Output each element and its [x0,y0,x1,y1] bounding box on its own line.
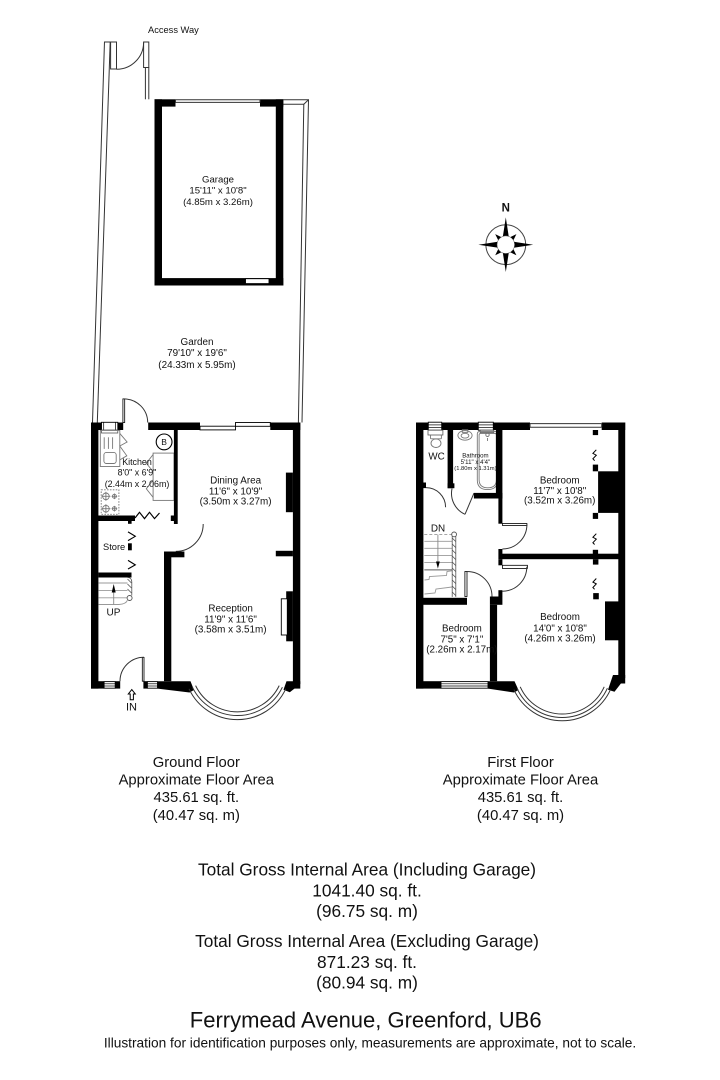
svg-text:Ground Floor: Ground Floor [153,755,240,771]
svg-text:B: B [161,437,167,447]
svg-text:Approximate Floor Area: Approximate Floor Area [443,773,599,789]
svg-text:Total Gross Internal Area (Exc: Total Gross Internal Area (Excluding Gar… [195,931,539,951]
svg-text:Illustration for identificatio: Illustration for identification purposes… [104,1035,636,1050]
svg-text:Bedroom: Bedroom [540,476,580,487]
svg-text:79'10" x 19'6": 79'10" x 19'6" [167,348,227,359]
svg-text:871.23 sq. ft.: 871.23 sq. ft. [317,952,417,972]
svg-text:WC: WC [428,452,444,463]
svg-text:Kitchen: Kitchen [122,457,152,467]
svg-text:N: N [502,203,510,215]
svg-text:1041.40 sq. ft.: 1041.40 sq. ft. [312,881,422,901]
svg-text:(40.47 sq. m): (40.47 sq. m) [477,808,564,824]
svg-text:(3.50m x 3.27m): (3.50m x 3.27m) [200,497,272,508]
svg-text:Reception: Reception [208,603,252,614]
svg-text:(4.26m x 3.26m): (4.26m x 3.26m) [524,634,595,645]
svg-text:Total Gross Internal Area (Inc: Total Gross Internal Area (Including Gar… [198,859,536,879]
svg-text:IN: IN [126,702,137,714]
svg-text:DN: DN [431,523,445,534]
svg-text:(96.75 sq. m): (96.75 sq. m) [316,901,418,921]
svg-text:(4.85m x 3.26m): (4.85m x 3.26m) [183,197,253,208]
svg-text:(2.44m x 2.06m): (2.44m x 2.06m) [105,479,170,489]
svg-text:(3.52m x 3.26m): (3.52m x 3.26m) [524,495,595,506]
svg-text:Bedroom: Bedroom [442,624,482,635]
svg-text:Bedroom: Bedroom [540,612,580,623]
svg-text:Approximate Floor Area: Approximate Floor Area [119,773,275,789]
svg-text:(3.58m x 3.51m): (3.58m x 3.51m) [195,624,267,635]
svg-text:(80.94 sq. m): (80.94 sq. m) [316,973,418,993]
svg-text:5'11" x 4'4": 5'11" x 4'4" [461,459,491,466]
svg-text:(1.80m x 1.31m): (1.80m x 1.31m) [454,466,496,472]
svg-text:Dining Area: Dining Area [210,475,262,486]
svg-text:15'11" x 10'8": 15'11" x 10'8" [189,186,246,197]
svg-text:Garage: Garage [202,174,234,185]
svg-text:(40.47 sq. m): (40.47 sq. m) [153,808,240,824]
svg-text:First Floor: First Floor [487,755,554,771]
svg-text:435.61 sq. ft.: 435.61 sq. ft. [478,790,564,806]
svg-text:435.61 sq. ft.: 435.61 sq. ft. [154,790,240,806]
svg-text:8'0" x 6'9": 8'0" x 6'9" [118,467,157,477]
svg-text:Ferrymead Avenue, Greenford, U: Ferrymead Avenue, Greenford, UB6 [190,1007,542,1032]
svg-text:Garden: Garden [181,337,214,348]
svg-text:Access Way: Access Way [148,25,199,35]
svg-text:(24.33m x 5.95m): (24.33m x 5.95m) [158,360,235,371]
svg-text:Store: Store [103,542,125,552]
svg-text:UP: UP [107,608,121,619]
svg-text:(2.26m x 2.17m): (2.26m x 2.17m) [426,644,497,655]
